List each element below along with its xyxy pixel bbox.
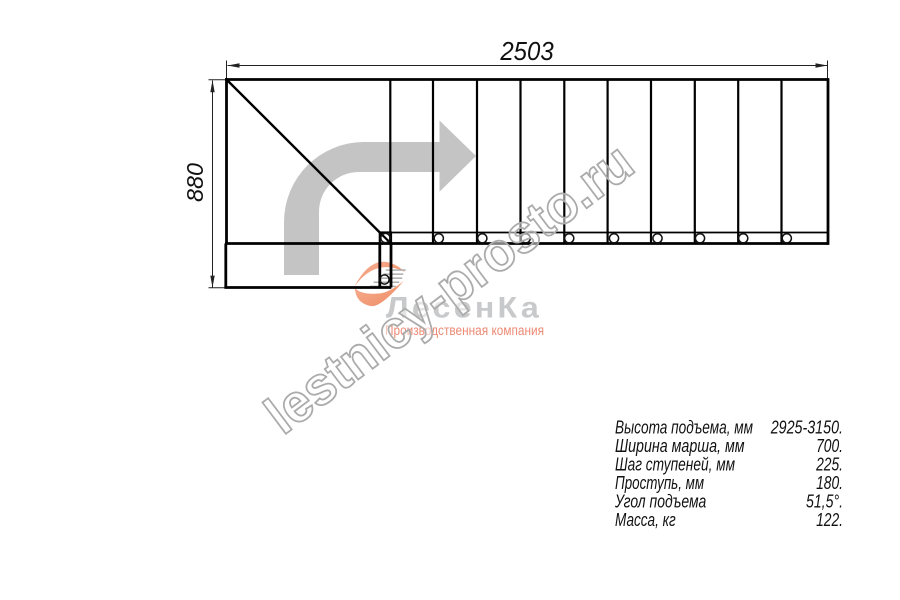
svg-text:122.: 122. — [816, 510, 843, 530]
svg-text:2925-3150.: 2925-3150. — [770, 418, 843, 438]
svg-text:Масса, кг: Масса, кг — [615, 510, 676, 530]
svg-text:880: 880 — [182, 163, 208, 202]
svg-text:180.: 180. — [816, 473, 843, 493]
svg-text:Проступь, мм: Проступь, мм — [615, 473, 704, 493]
svg-text:2503: 2503 — [499, 36, 554, 66]
svg-text:Угол подъема: Угол подъема — [614, 492, 706, 512]
svg-text:700.: 700. — [816, 436, 843, 456]
svg-text:Ширина марша, мм: Ширина марша, мм — [615, 436, 745, 456]
svg-text:51,5°.: 51,5°. — [806, 492, 843, 512]
svg-text:Высота подъема, мм: Высота подъема, мм — [615, 418, 753, 438]
svg-text:225.: 225. — [815, 455, 843, 475]
svg-text:Шаг ступеней, мм: Шаг ступеней, мм — [615, 455, 735, 475]
